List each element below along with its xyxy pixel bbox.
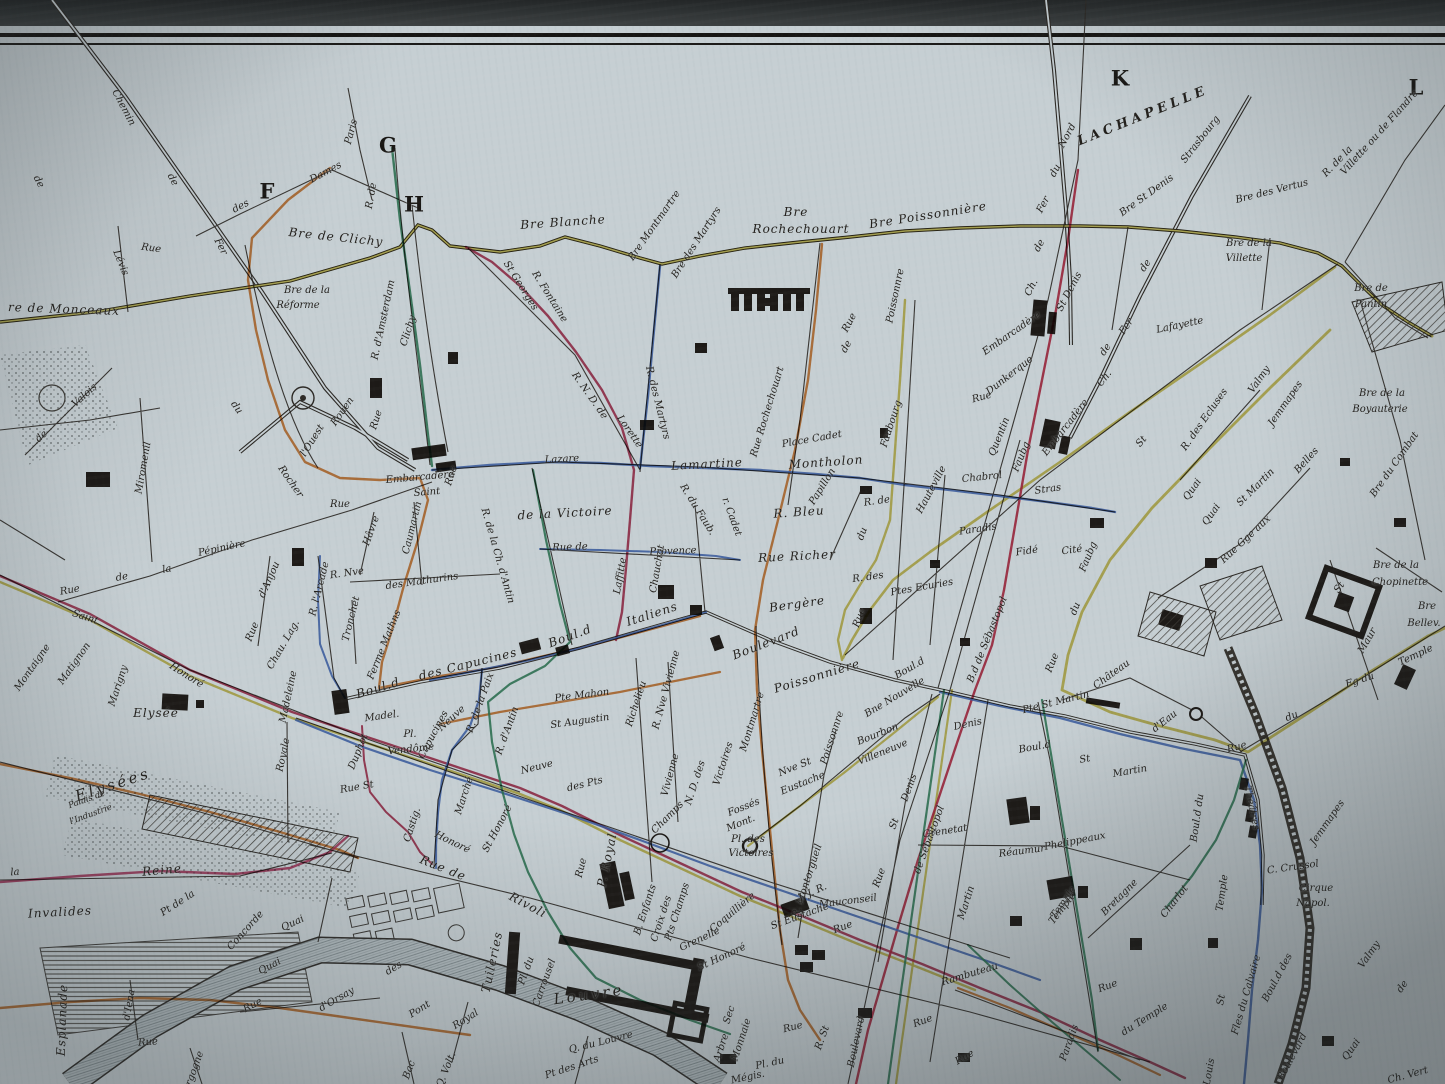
map-label: Pantin: [1355, 300, 1387, 310]
map-label: Honoré: [433, 830, 471, 856]
map-label: R. Nve Vivienne: [652, 649, 683, 730]
map-label: Lafayette: [1156, 316, 1205, 336]
map-label: Bourgogne: [178, 1050, 206, 1084]
map-label: Rue: [782, 1021, 804, 1036]
map-label: Bre St Denis: [1118, 173, 1176, 219]
map-label: Q. du Louvre: [568, 1030, 634, 1056]
map-label: Madeleine: [279, 670, 300, 724]
map-label: de: [1098, 342, 1113, 358]
map-label: Royal: [451, 1008, 480, 1032]
map-label: Castig.: [403, 807, 423, 844]
map-label: Miromenil: [135, 441, 154, 494]
map-label: Cirque: [1299, 884, 1333, 894]
map-label: Victoires: [729, 849, 774, 859]
map-label: Réaumur: [998, 844, 1045, 860]
map-label: Valmy: [1247, 365, 1273, 396]
map-label: Pt des Arts: [544, 1055, 600, 1082]
map-label: Boyauterie: [1352, 405, 1407, 415]
map-label: des: [384, 960, 404, 977]
map-label: Rue: [1226, 741, 1248, 756]
map-label: Victoires: [712, 741, 735, 787]
map-label: Bre des Vertus: [1235, 178, 1310, 206]
map-label: Bre de la: [284, 286, 330, 296]
map-label: St Honoré: [696, 942, 747, 973]
map-label: Jemmapes: [1309, 799, 1347, 848]
map-label: Rue: [245, 621, 262, 643]
map-label: C. Crussol: [1267, 859, 1320, 876]
map-label: R. N. D. de: [569, 371, 609, 422]
map-label: Caumartin: [402, 501, 425, 556]
map-label: Montholon: [788, 453, 863, 470]
map-label: Quai: [1182, 477, 1204, 502]
map-label: Louis: [1203, 1058, 1218, 1084]
map-label: Place Cadet: [781, 430, 842, 450]
map-label: Chopinette: [1372, 578, 1428, 588]
map-label: du: [856, 526, 870, 541]
map-label: Rivoli: [507, 890, 548, 920]
map-label: Tuileries: [480, 930, 505, 993]
map-label: LACHAPELLE: [1076, 84, 1211, 148]
map-label: Rue Richer: [758, 548, 836, 564]
map-label: Bergère: [768, 594, 825, 614]
map-label: du: [1069, 601, 1083, 617]
map-label: Quai: [280, 914, 306, 933]
map-label: Bre de la: [1359, 389, 1405, 399]
map-label: Rue: [330, 500, 350, 510]
map-label: Fer: [1118, 317, 1136, 337]
map-label: Rue: [954, 1049, 976, 1068]
map-label: Richelieu: [625, 680, 649, 728]
map-label: St: [1079, 754, 1091, 766]
map-label: Réforme: [276, 301, 319, 311]
map-label: Bellev.: [1407, 619, 1440, 629]
map-label: Boul.d des: [1261, 952, 1295, 1004]
map-label: Bac: [402, 1059, 418, 1080]
map-label: Hâvre: [362, 515, 382, 548]
map-label: Rue: [832, 920, 854, 936]
map-label: P. Royal: [595, 832, 618, 889]
map-label: St: [1333, 581, 1347, 596]
map-label: Rue de: [418, 853, 467, 882]
map-label: R. de la Paix: [466, 672, 497, 734]
map-label: Boul.d du: [1190, 793, 1207, 843]
map-label: Tronchet: [342, 596, 363, 643]
map-label: Ferme Mathns: [367, 609, 404, 681]
map-label: Poissonnre: [820, 710, 847, 766]
map-label: R. Bleu: [773, 504, 825, 520]
map-label: la: [10, 868, 20, 879]
map-label: Chemin: [109, 88, 136, 127]
map-label: la: [162, 564, 173, 575]
map-label: Concorde: [226, 910, 266, 953]
map-label: Rue: [1097, 979, 1119, 995]
map-label: Rue: [242, 997, 264, 1015]
map-label: Embarcadère: [1041, 398, 1091, 458]
map-label: Elysée: [133, 707, 179, 719]
map-label: Rue: [140, 243, 161, 256]
map-label: Bre des Martyrs: [670, 206, 723, 281]
map-label: Denis: [900, 773, 919, 803]
map-label: Chabrol: [961, 471, 1002, 485]
map-label: Bre: [784, 206, 809, 218]
map-label: Strasbourg: [1180, 115, 1223, 166]
map-label: Q. Volt.: [435, 1051, 458, 1084]
map-label: des: [231, 198, 251, 215]
map-label: Rue: [872, 867, 888, 889]
map-label: de: [1033, 238, 1048, 254]
map-label: R. de: [863, 495, 890, 509]
map-label: r. Cadet: [719, 496, 742, 537]
map-label: Honoré: [167, 662, 204, 691]
map-label: Rue: [852, 607, 868, 629]
map-label: Paradis: [1059, 1024, 1081, 1063]
map-label: d'Eau: [1151, 709, 1180, 735]
map-label: de: [31, 174, 46, 190]
map-label: St Augustin: [550, 713, 610, 731]
map-label: de: [165, 172, 180, 188]
map-label: de: [115, 572, 129, 584]
map-label: Denis: [953, 717, 983, 733]
map-label: K: [1111, 68, 1129, 89]
map-label: Maur: [1357, 627, 1379, 656]
map-label: Rue: [912, 1014, 934, 1030]
map-label: Rue: [1045, 652, 1062, 674]
map-label: Rue St: [339, 780, 374, 796]
map-label: Matignon: [57, 641, 93, 687]
map-label: Quentin: [988, 416, 1013, 457]
map-label: N. D. des: [684, 760, 708, 807]
map-label: Pl.: [403, 730, 416, 740]
map-label: Pt de la: [159, 889, 197, 918]
map-label: Temple: [1397, 644, 1435, 669]
map-label: Château: [1092, 658, 1132, 691]
map-label: St Denis: [1056, 271, 1085, 313]
map-label: Lamartine: [671, 456, 743, 472]
map-label: Embarcadère: [981, 310, 1043, 357]
map-label: Louvre: [553, 983, 626, 1008]
map-label: Bre du Combat: [1369, 431, 1421, 500]
map-label: Ptes Ecuries: [890, 578, 954, 599]
map-label: Rocher: [275, 464, 304, 499]
map-label: Invalides: [28, 904, 93, 919]
map-label: Quai: [1341, 1037, 1363, 1062]
map-label: Bre de: [1354, 284, 1388, 294]
map-label: Montmartre: [739, 691, 767, 753]
map-label: Laffitte: [613, 557, 629, 595]
map-label: St Georges: [501, 260, 539, 313]
map-label: des Mathurins: [385, 572, 459, 592]
map-label: Quai: [257, 957, 283, 977]
map-label: Martin: [1112, 764, 1148, 780]
map-label: Ch.: [1024, 278, 1041, 298]
map-label: R. l'Arcade: [308, 561, 331, 617]
map-label: Rambuteau: [941, 962, 1000, 989]
map-label: Bre de la: [1373, 561, 1419, 571]
map-label: Royale: [276, 737, 293, 773]
map-label: R. Fontaine: [529, 270, 568, 325]
map-label: de: [1395, 979, 1410, 995]
map-label: Belles: [1293, 446, 1321, 476]
map-label: Pte St Martin: [1022, 690, 1091, 716]
map-label: Fer: [212, 237, 229, 257]
map-label: R. du Faub.: [677, 483, 716, 538]
antique-paris-map-photo: ChemindedeFerRueLévisdesDamesFParisGHR. …: [0, 0, 1445, 1084]
map-label: Reine: [142, 862, 183, 877]
map-label: Pl. du: [517, 956, 536, 987]
map-label: Boulevard: [1276, 1032, 1309, 1082]
map-label: Saint: [71, 609, 99, 627]
map-label: Sec: [722, 1005, 737, 1026]
map-label: Montaigne: [13, 643, 53, 693]
map-label: Rue: [138, 1037, 159, 1048]
map-label: Capucines: [417, 709, 451, 760]
map-label: Quai: [1201, 502, 1223, 527]
map-label: Lorette: [614, 414, 644, 450]
map-label: R. d'Antin: [495, 706, 522, 757]
map-label: Papillon: [808, 467, 838, 507]
map-label: Grenelle: [678, 926, 722, 953]
map-label: Fer: [1036, 195, 1053, 215]
map-label: Rouen: [330, 396, 357, 428]
map-label: Faubg: [1011, 441, 1032, 474]
map-label: de la Victoire: [517, 505, 613, 522]
map-label: Rue Rochechouart: [749, 366, 786, 459]
map-label: Pont: [408, 1000, 433, 1021]
map-label: R. Nve: [329, 567, 364, 582]
map-label: Neuve: [520, 759, 554, 777]
map-label: Bre Blanche: [520, 213, 606, 231]
map-label: Monnaie: [730, 1017, 753, 1062]
map-label: Pte Mahon: [554, 688, 610, 705]
map-label: R. d'Amsterdam: [371, 279, 398, 361]
map-label: du: [228, 400, 244, 416]
map-label: re de Monceaux: [8, 301, 120, 317]
map-label: R. de la Ch. d'Antin: [479, 507, 516, 605]
map-label: Rue: [575, 857, 590, 879]
map-label: Rue: [841, 312, 859, 334]
map-label: Fidé: [1015, 545, 1039, 558]
map-label: Bre: [1418, 602, 1436, 612]
map-label: de: [1138, 258, 1153, 274]
map-label: Vivienne: [661, 753, 682, 798]
map-label: Fg du: [1344, 672, 1375, 691]
map-label: St: [1135, 435, 1150, 450]
map-label: Poissonnre: [885, 268, 906, 324]
map-label: d'Iena: [122, 989, 137, 1022]
map-label: Charlot: [1159, 884, 1190, 920]
map-label: Marigny: [108, 664, 131, 708]
map-label: l'Ouest: [299, 423, 326, 459]
map-label: R. St: [814, 1025, 832, 1052]
map-labels-layer: ChemindedeFerRueLévisdesDamesFParisGHR. …: [0, 0, 1445, 1084]
map-label: d'Orsay: [318, 986, 357, 1014]
map-label: de: [34, 429, 50, 445]
map-label: Boulevard: [731, 625, 802, 662]
map-label: de Sébastopol: [913, 805, 947, 876]
map-label: Cité: [1061, 545, 1083, 558]
map-label: Paradis: [959, 522, 998, 537]
map-label: Ch.: [1096, 369, 1115, 389]
map-label: Stras: [1034, 483, 1062, 497]
map-label: Madel.: [364, 710, 400, 725]
map-label: Rue de: [552, 542, 588, 553]
map-label: Bretagne: [1100, 878, 1140, 918]
map-label: Mégis.: [730, 1070, 765, 1084]
map-label: Hauteville: [915, 465, 948, 516]
map-label: Lévis: [110, 249, 129, 277]
map-label: St Martin: [1235, 467, 1276, 508]
map-label: Clichy: [399, 314, 418, 347]
map-label: Valois: [71, 382, 100, 409]
map-label: du: [1284, 710, 1300, 724]
map-label: Paris: [344, 118, 360, 145]
map-label: de: [840, 339, 855, 355]
map-label: Poissonnière: [772, 657, 861, 695]
map-label: du Temple: [1120, 1002, 1170, 1038]
map-label: Bre Poissonnière: [868, 200, 987, 230]
map-label: Marché: [454, 776, 476, 816]
map-label: R. des Martyrs: [643, 365, 671, 440]
map-label: Bre de Clichy: [288, 226, 384, 248]
map-label: d'Anjou: [258, 560, 283, 599]
map-label: Italiens: [625, 600, 679, 628]
map-label: F: [260, 181, 275, 202]
map-label: Lazare: [544, 454, 579, 466]
map-label: Faubourg: [880, 399, 905, 448]
map-label: Théâtres: [1241, 785, 1260, 831]
map-label: Rue: [59, 584, 80, 597]
map-label: Boul.d: [355, 676, 402, 701]
map-label: des Pts: [566, 776, 604, 795]
map-label: Temple: [1215, 874, 1230, 912]
map-label: Bne Nouvelle: [863, 676, 926, 720]
map-label: H: [404, 194, 424, 215]
map-label: Dunkerque: [985, 355, 1036, 398]
map-label: St Honoré: [481, 804, 514, 855]
map-label: Boul.d: [1018, 740, 1052, 756]
map-label: Rochechouart: [753, 223, 850, 235]
map-label: Phelippeaux: [1043, 831, 1106, 853]
map-label: Bre Montmartre: [627, 189, 683, 263]
map-label: R. des Ecluses: [1180, 387, 1230, 453]
map-label: Rue: [369, 409, 385, 431]
map-label: Chau. Lag.: [266, 619, 302, 672]
map-label: des Capucines: [418, 646, 519, 682]
map-label: du: [1049, 163, 1064, 179]
map-label: Champs: [650, 800, 686, 836]
map-label: St: [888, 817, 901, 831]
map-label: St: [1216, 994, 1228, 1006]
map-label: Villette ou de Flandre: [1339, 89, 1420, 178]
map-label: G: [379, 135, 397, 156]
map-label: Fles du Calvaire: [1231, 954, 1263, 1036]
map-label: Pl. des: [731, 835, 765, 845]
map-label: Valmy: [1357, 940, 1383, 971]
map-label: Napol.: [1296, 899, 1330, 909]
map-label: Esplanade: [55, 984, 70, 1057]
map-label: Boul.d: [547, 623, 593, 650]
map-label: R. des: [852, 571, 884, 585]
map-label: Boulevard: [847, 1016, 868, 1069]
map-label: Martin: [957, 885, 977, 921]
map-label: Bre de la: [1226, 239, 1272, 249]
map-label: Saint: [413, 487, 440, 499]
map-label: Dames: [308, 160, 343, 185]
map-label: Duphot: [347, 733, 370, 771]
map-label: Pépinière: [197, 539, 246, 559]
map-label: Rue Gge aux: [1219, 514, 1273, 565]
map-label: Jemmapes: [1267, 380, 1305, 429]
map-label: Villette: [1226, 254, 1263, 264]
map-label: Ch. Vert: [1387, 1066, 1430, 1084]
map-label: B.d de Sébastopol: [966, 596, 1010, 685]
map-label: R. de: [365, 182, 379, 210]
